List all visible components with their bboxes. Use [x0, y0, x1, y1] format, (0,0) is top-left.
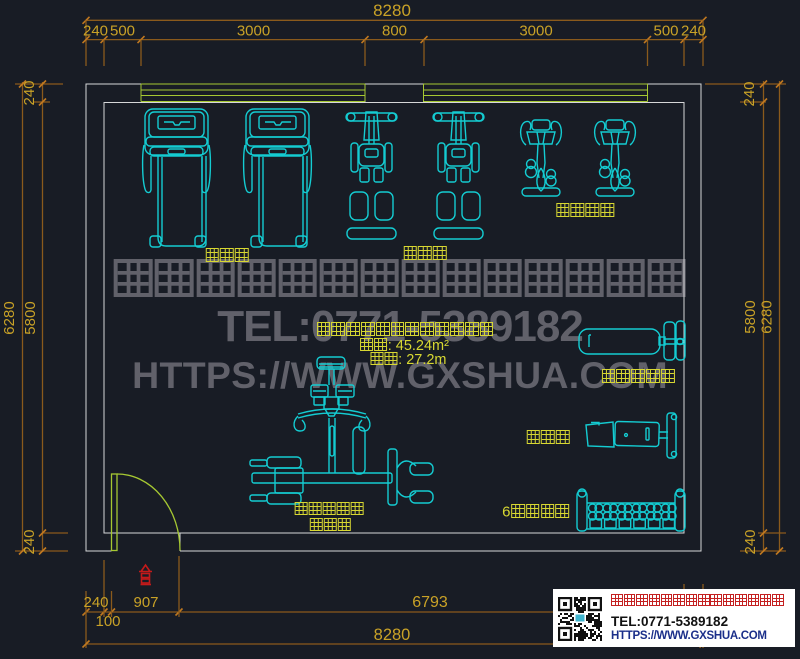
svg-text:500: 500: [653, 23, 678, 40]
svg-text:500: 500: [110, 23, 135, 40]
svg-text:3000: 3000: [237, 23, 270, 40]
svg-text:8280: 8280: [373, 1, 411, 20]
svg-text:240: 240: [742, 529, 759, 554]
svg-text:6793: 6793: [412, 594, 448, 611]
svg-text:6280: 6280: [759, 300, 776, 333]
svg-text:5800: 5800: [22, 301, 39, 334]
svg-text:800: 800: [382, 23, 407, 40]
svg-text:240: 240: [741, 81, 758, 106]
svg-text:240: 240: [681, 23, 706, 40]
svg-text:907: 907: [133, 594, 158, 611]
svg-text:240: 240: [83, 23, 108, 40]
svg-text:5800: 5800: [742, 300, 759, 333]
svg-text:240: 240: [21, 80, 38, 105]
svg-text:6280: 6280: [1, 301, 18, 334]
svg-text:240: 240: [83, 594, 108, 611]
svg-text:100: 100: [95, 613, 120, 630]
svg-text:240: 240: [21, 529, 38, 554]
svg-text:8280: 8280: [374, 626, 411, 644]
svg-text:3000: 3000: [519, 23, 552, 40]
